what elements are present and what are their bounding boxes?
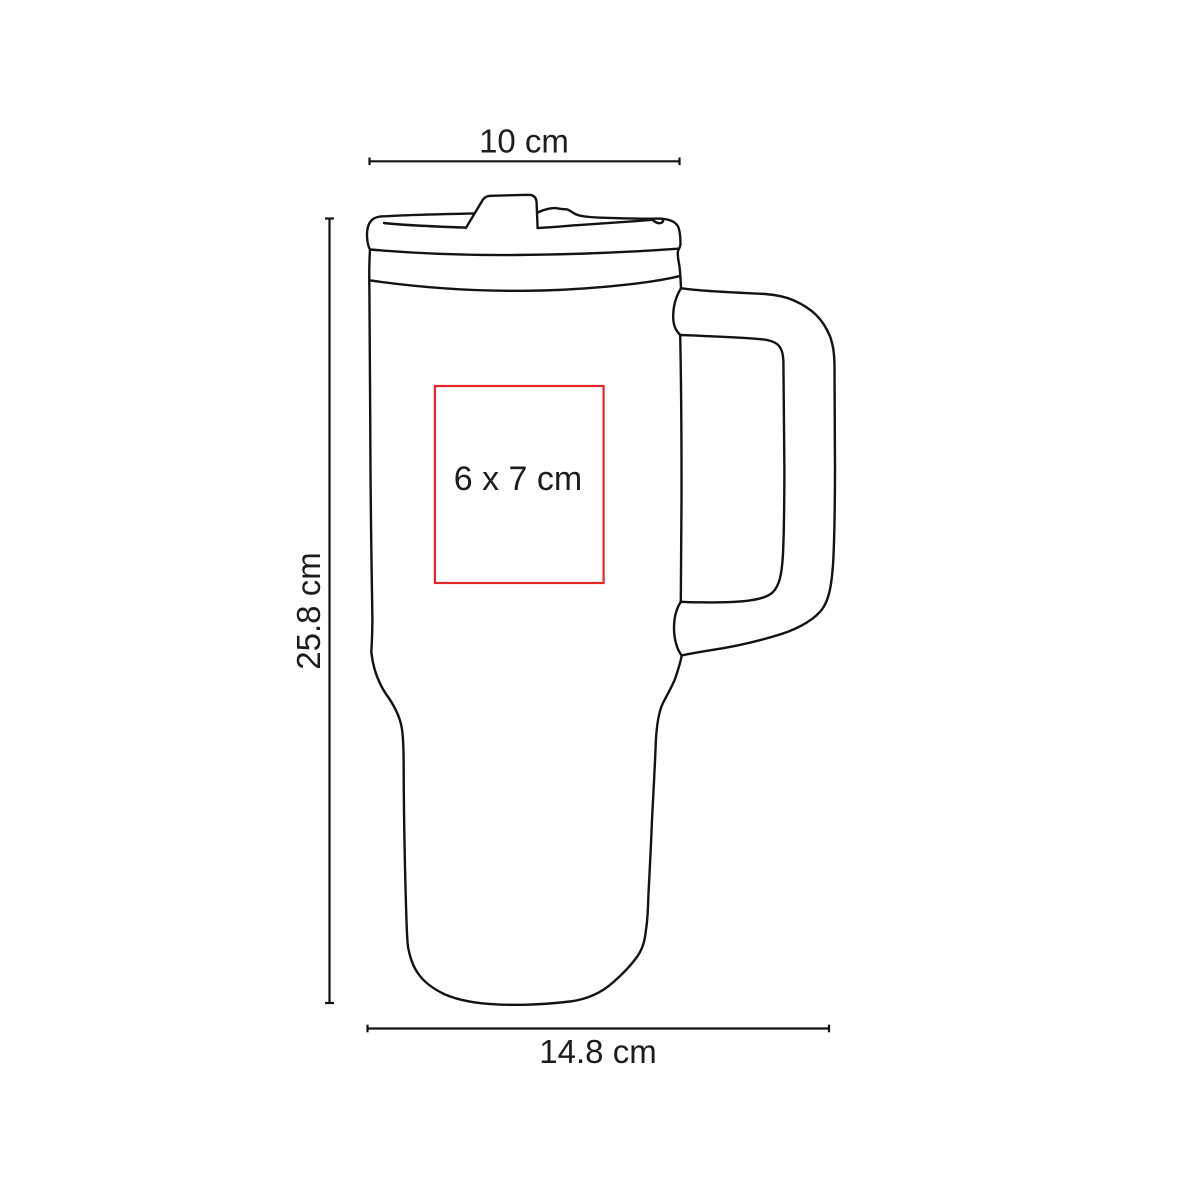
svg-text:6 x 7 cm: 6 x 7 cm (454, 460, 582, 498)
svg-text:10 cm: 10 cm (479, 123, 569, 160)
svg-text:14.8 cm: 14.8 cm (539, 1033, 656, 1070)
svg-text:25.8 cm: 25.8 cm (290, 552, 327, 669)
